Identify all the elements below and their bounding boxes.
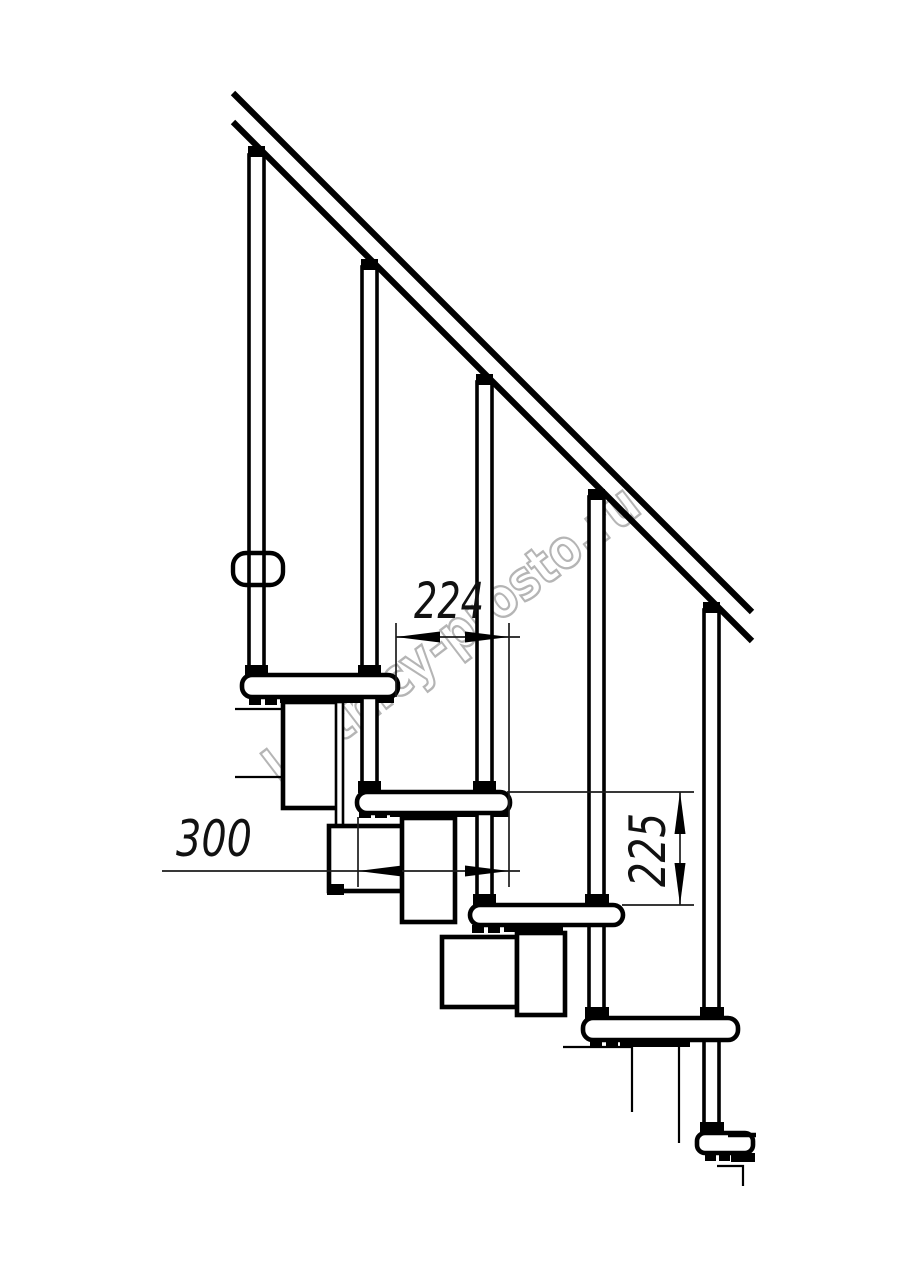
baluster-4-lower bbox=[589, 925, 604, 1018]
support-modules bbox=[283, 702, 565, 1015]
baluster-2-upper bbox=[362, 267, 377, 675]
tread-1 bbox=[242, 675, 398, 697]
tread-4 bbox=[583, 1018, 738, 1040]
baluster-2-lower bbox=[362, 697, 377, 792]
baluster-5-upper bbox=[704, 610, 719, 1018]
baluster-4-upper bbox=[589, 497, 604, 905]
staircase-drawing-canvas: lestnicy-prosto.ru bbox=[0, 0, 914, 1280]
baluster-3-lower bbox=[477, 812, 492, 905]
module-box-under-tread-c bbox=[442, 937, 517, 1007]
module-box-under-tread-a bbox=[283, 702, 338, 808]
tread-3 bbox=[470, 905, 623, 925]
baluster-1 bbox=[249, 155, 264, 675]
module-column-b bbox=[402, 818, 455, 922]
tread-2 bbox=[357, 792, 510, 813]
module-column-a bbox=[336, 702, 343, 826]
module-box-under-tread-b bbox=[329, 826, 405, 891]
dim-300-label: 300 bbox=[176, 810, 252, 868]
dim-225-label: 225 bbox=[619, 813, 677, 887]
staircase-drawing: lestnicy-prosto.ru bbox=[0, 0, 914, 1280]
module-column-c bbox=[517, 933, 565, 1015]
module-joint-blob bbox=[327, 884, 344, 895]
baluster-5-lower bbox=[704, 1040, 719, 1133]
dim-224-label: 224 bbox=[414, 572, 484, 630]
